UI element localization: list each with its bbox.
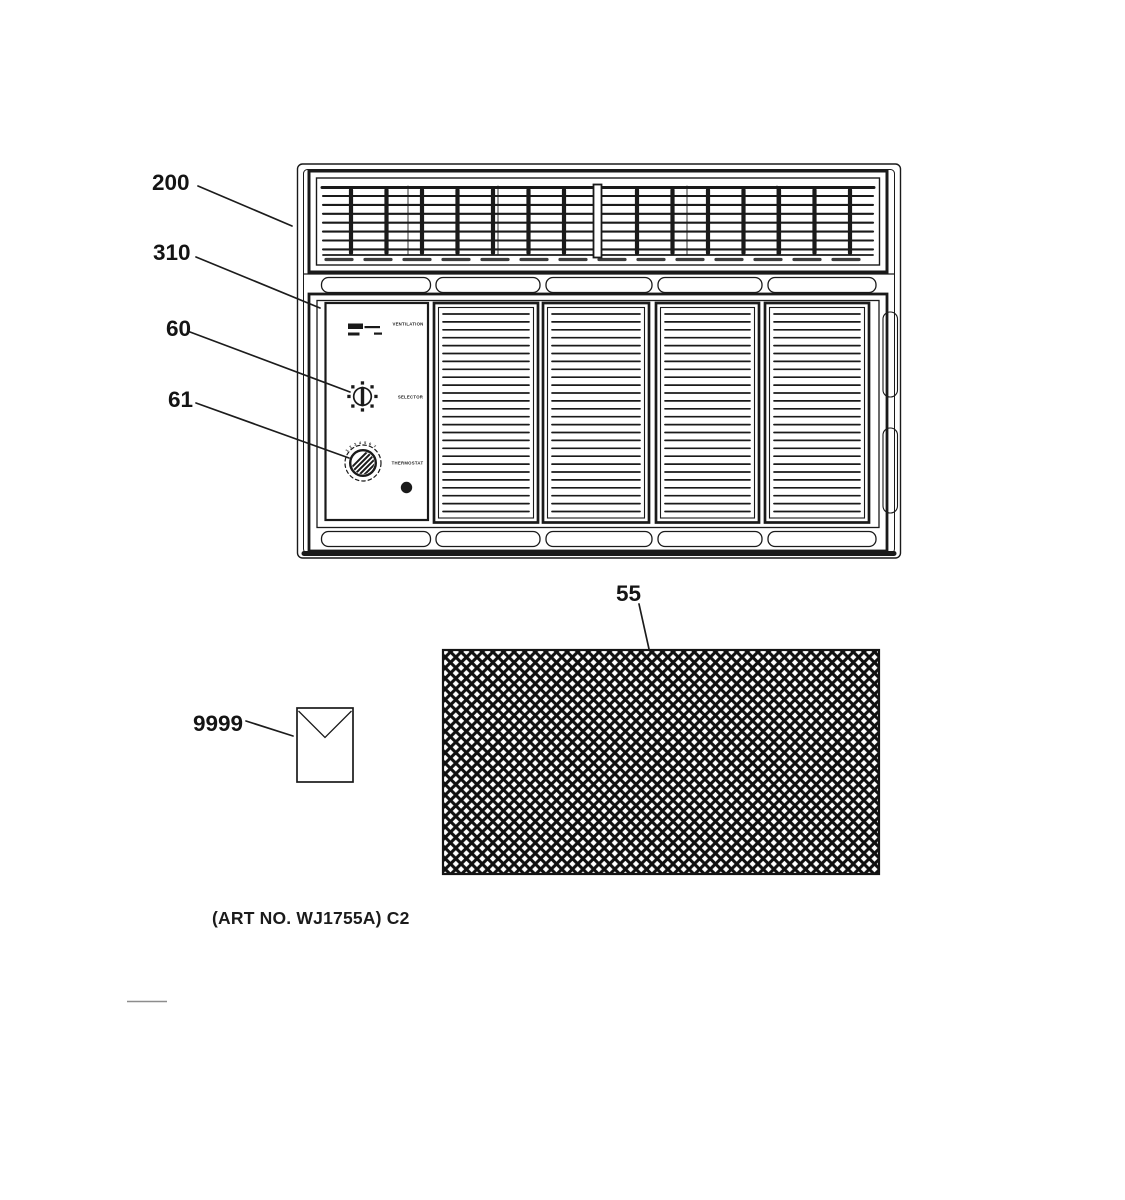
indicator-dot bbox=[401, 482, 412, 493]
svg-text:9999: 9999 bbox=[193, 711, 243, 736]
louver-panel-4 bbox=[765, 303, 869, 523]
diagram-page: VENTILATION SELE bbox=[0, 0, 1125, 1200]
louver-panel-2 bbox=[543, 303, 649, 523]
front-panel: VENTILATION SELE bbox=[309, 294, 887, 551]
control-panel-face bbox=[326, 303, 429, 520]
front-grille bbox=[309, 171, 887, 272]
svg-text:200: 200 bbox=[152, 170, 190, 195]
callout-grille: 200 bbox=[152, 170, 292, 226]
literature-envelope bbox=[297, 708, 353, 782]
svg-text:55: 55 bbox=[616, 581, 641, 606]
svg-text:60: 60 bbox=[166, 316, 191, 341]
side-bumper-top bbox=[883, 312, 898, 397]
svg-text:310: 310 bbox=[153, 240, 191, 265]
callout-front-panel: 310 bbox=[153, 240, 320, 308]
selector-label: SELECTOR bbox=[398, 395, 424, 400]
grille-center-divider bbox=[594, 185, 602, 258]
thermostat-label: THERMOSTAT bbox=[392, 461, 424, 466]
louver-panel-3 bbox=[656, 303, 759, 523]
side-bumper-bottom bbox=[883, 428, 898, 513]
callout-filter: 55 bbox=[616, 581, 649, 649]
ac-unit-assembly: VENTILATION SELE bbox=[298, 164, 901, 558]
grille-bars-right bbox=[637, 190, 850, 253]
top-trim-tabs bbox=[322, 278, 877, 293]
art-number: (ART NO. WJ1755A) C2 bbox=[212, 908, 410, 928]
callout-selector-knob: 60 bbox=[166, 316, 350, 392]
filter-mesh bbox=[443, 650, 879, 874]
callout-envelope: 9999 bbox=[193, 711, 293, 736]
control-panel: VENTILATION SELE bbox=[326, 303, 429, 520]
louver-panel-1 bbox=[434, 303, 538, 523]
svg-text:61: 61 bbox=[168, 387, 193, 412]
grille-bars-left bbox=[351, 190, 564, 253]
bottom-trim-tabs bbox=[322, 532, 877, 547]
parts-diagram: VENTILATION SELE bbox=[0, 0, 1125, 1200]
ventilation-label: VENTILATION bbox=[392, 322, 423, 327]
callout-thermostat-knob: 61 bbox=[168, 387, 349, 458]
